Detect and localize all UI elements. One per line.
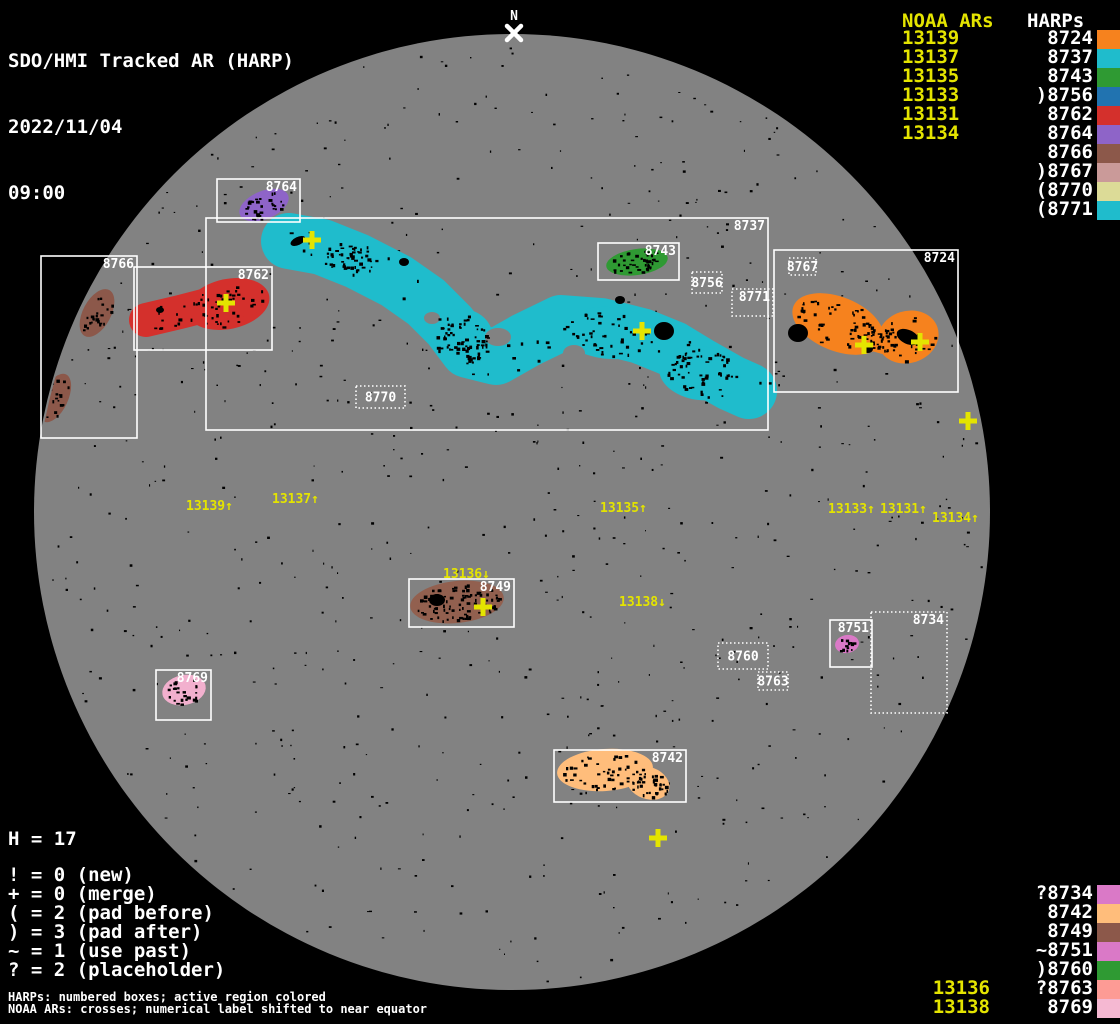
region-speckle [477,358,480,361]
speckle [680,522,683,524]
region-speckle [242,298,245,300]
region-speckle [477,344,480,346]
region-speckle [627,781,630,783]
region-speckle [61,404,64,406]
region-speckle [486,341,488,343]
speckle [868,572,871,573]
region-speckle [232,312,235,315]
region-speckle [468,347,472,349]
region-speckle [449,606,451,608]
speckle [417,88,419,89]
speckle [380,868,381,870]
speckle [333,801,336,803]
speckle [580,793,583,795]
region-speckle [55,398,58,400]
speckle [323,563,324,565]
speckle [415,875,418,877]
speckle [562,530,564,532]
speckle [732,285,734,287]
speckle [518,752,520,754]
speckle [442,752,444,753]
speckle [432,409,434,411]
speckle [842,219,844,221]
legend-color-swatch [1097,942,1120,961]
region-speckle [579,780,582,782]
speckle [910,635,913,636]
speckle [946,499,947,500]
time-label: 09:00 [8,182,294,204]
region-speckle [646,792,648,794]
region-speckle [638,781,641,783]
region-speckle [354,260,358,262]
region-speckle [668,372,670,375]
speckle [548,492,550,494]
region-speckle [238,321,241,323]
speckle [78,487,79,489]
speckle [707,226,708,227]
region-speckle [857,335,859,338]
speckle [220,654,222,655]
speckle [649,190,651,192]
speckle [598,671,600,673]
region-speckle [697,356,700,358]
region-speckle [828,307,830,310]
speckle [342,471,344,473]
speckle [579,465,580,466]
speckle [670,607,672,609]
speckle [601,187,603,189]
region-speckle [435,607,438,610]
speckle [591,268,592,270]
speckle [511,413,514,416]
region-speckle [477,340,481,342]
region-speckle [884,350,886,353]
speckle [652,469,654,471]
speckle [492,803,494,805]
harp-count: H = 17 [8,828,77,850]
speckle [672,120,674,122]
region-speckle [195,692,197,694]
region-speckle [547,346,551,348]
speckle [467,809,469,811]
speckle [292,350,293,351]
region-speckle [877,347,880,350]
region-speckle [183,695,187,697]
region-speckle [439,318,442,320]
region-speckle [804,319,808,322]
region-speckle [637,785,639,788]
region-speckle [220,295,222,298]
region-speckle [463,618,465,621]
speckle [149,484,150,486]
speckle [306,931,308,933]
region-speckle [675,363,677,365]
speckle [90,493,92,495]
speckle [338,523,340,525]
region-speckle [444,609,446,612]
region-speckle [468,316,471,319]
region-speckle [613,758,615,761]
speckle [686,257,689,258]
region-speckle [614,756,618,759]
speckle [185,765,188,767]
region-speckle [682,376,685,379]
legend-color-swatch [1097,904,1120,923]
region-speckle [619,756,623,759]
region-speckle [461,342,464,345]
region-speckle [702,378,705,381]
region-speckle [867,332,870,335]
speckle [877,674,879,676]
region-speckle [96,312,98,314]
region-speckle [689,341,691,344]
region-speckle [421,612,424,614]
region-speckle [620,270,623,272]
region-speckle [690,357,692,359]
region-speckle [667,790,669,793]
speckle [610,959,613,961]
region-speckle [574,767,578,769]
speckle [676,236,677,238]
speckle [290,745,291,746]
region-speckle [475,594,477,596]
region-speckle [599,347,603,349]
speckle [729,346,732,348]
speckle [537,425,538,426]
region-speckle [863,323,866,326]
speckle [545,535,547,537]
region-speckle [629,264,632,266]
speckle [768,138,771,140]
speckle [611,658,612,659]
region-speckle [632,774,635,776]
speckle [543,864,544,866]
speckle [482,534,485,536]
region-speckle [196,686,198,688]
region-speckle [682,356,684,359]
region-speckle [435,612,438,614]
speckle [682,161,685,163]
speckle [704,104,706,105]
speckle [65,578,66,580]
region-speckle [183,306,185,308]
region-speckle [891,329,894,332]
region-speckle [367,258,371,261]
region-speckle [507,344,510,347]
region-speckle [232,295,236,297]
speckle [738,679,740,681]
speckle [371,796,374,798]
region-speckle [670,377,674,380]
region-speckle [454,587,458,589]
region-speckle [227,290,230,292]
speckle [504,526,506,528]
region-speckle [212,317,214,319]
speckle [423,834,424,836]
harp-tracker-screen: 8737876487668762874387568771876787248770… [0,0,1120,1024]
speckle [330,196,331,197]
legend-harp-id: (8771 [943,200,1093,219]
speckle [952,345,953,347]
region-speckle [853,322,855,324]
region-speckle [418,610,420,612]
speckle [339,782,341,784]
speckle [715,655,716,657]
speckle [322,890,324,892]
harp-box-label: 8737 [734,219,765,234]
region-speckle [928,348,931,350]
speckle [562,365,565,367]
speckle [746,822,748,824]
region-speckle [655,792,659,795]
speckle [750,262,752,263]
region-speckle [216,314,219,318]
region-speckle [251,299,255,302]
region-speckle [637,269,641,271]
harp-box-label: 8771 [739,290,770,305]
speckle [508,552,510,554]
speckle [202,251,203,253]
region-speckle [588,757,592,759]
speckle [712,522,714,524]
region-speckle [193,302,195,305]
region-speckle [220,322,222,325]
region-speckle [447,619,449,621]
region-speckle [596,789,598,792]
region-speckle [58,400,60,402]
harp-box-label: 8742 [652,751,683,766]
speckle [170,757,171,759]
region-speckle [604,335,606,338]
speckle [624,114,625,116]
speckle [692,629,695,630]
region-speckle [620,782,624,785]
legend-color-swatch [1097,961,1120,980]
region-speckle [612,770,615,773]
region-speckle [886,332,888,335]
speckle [489,660,490,661]
speckle [313,550,314,552]
speckle [752,767,754,769]
region-speckle [328,248,331,251]
speckle [305,170,308,171]
speckle [162,480,165,482]
region-speckle [449,348,451,350]
region-hole [563,345,585,361]
legend-color-swatch [1097,30,1120,49]
speckle [390,558,392,561]
harp-box-8767: 8767 [787,258,818,275]
region-speckle [492,606,496,609]
speckle [430,405,433,407]
region-speckle [819,324,823,327]
region-speckle [735,376,738,378]
region-speckle [635,761,638,764]
speckle [512,53,514,55]
speckle [380,687,383,688]
speckle [579,410,582,412]
region-speckle [881,340,883,343]
speckle [821,676,823,678]
region-speckle [620,255,623,257]
speckle [58,545,60,547]
region-speckle [618,768,621,771]
speckle [383,465,385,466]
harp-box-label: 8743 [645,244,676,259]
speckle [858,819,859,820]
region-speckle [632,789,635,791]
region-speckle [443,328,445,330]
region-speckle [829,312,831,314]
harp-box-label: 8763 [757,675,788,690]
speckle [656,741,658,743]
region-speckle [350,267,354,270]
harp-box-label: 8770 [365,391,396,406]
region-speckle [359,263,363,266]
region-speckle [887,336,890,339]
speckle [371,433,373,435]
region-speckle [591,318,595,320]
speckle [91,629,94,632]
region-speckle [692,350,695,352]
speckle [329,926,332,928]
region-speckle [628,354,630,357]
region-speckle [801,307,803,310]
speckle [443,630,446,632]
speckle [617,93,619,95]
region-speckle [566,326,570,328]
region-speckle [931,344,935,347]
region-speckle [846,640,849,643]
region-speckle [602,351,604,354]
speckle [701,776,703,777]
speckle [921,522,924,524]
region-speckle [467,610,471,612]
speckle [447,449,449,450]
region-speckle [100,298,102,300]
speckle [774,132,776,133]
speckle [204,743,206,744]
harp-box-label: 8767 [787,260,818,275]
speckle [186,655,189,657]
speckle [387,124,388,126]
speckle [717,232,719,234]
region-speckle [450,597,454,600]
region-speckle [466,615,468,618]
region-speckle [717,353,719,357]
region-speckle [831,306,833,308]
speckle [122,331,123,333]
speckle [658,201,660,202]
region-speckle [487,373,489,375]
speckle [660,117,663,119]
speckle [410,427,413,429]
region-speckle [658,350,660,352]
speckle [133,635,135,636]
region-speckle [87,327,89,329]
region-speckle [570,779,574,781]
speckle [685,922,687,924]
speckle [469,664,472,666]
speckle [426,350,428,351]
region-speckle [448,328,451,330]
region-speckle [232,298,234,300]
speckle [732,567,735,568]
region-speckle [612,355,615,358]
speckle [94,445,96,447]
region-speckle [871,335,873,337]
speckle [962,445,963,447]
speckle [120,283,122,284]
speckle [672,720,674,722]
speckle [418,745,419,747]
region-speckle [360,248,362,251]
speckle [234,496,235,498]
speckle [327,400,329,402]
legend-color-swatch [1097,999,1120,1018]
speckle [426,694,428,696]
speckle [683,170,686,172]
speckle [216,385,218,386]
region-speckle [93,318,95,320]
sunspot [429,594,445,606]
region-speckle [311,254,313,256]
region-speckle [486,600,488,602]
speckle [181,381,183,383]
speckle [919,407,922,408]
harp-box-8756: 8756 [691,272,722,293]
speckle [443,479,445,481]
speckle [841,271,844,272]
speckle [865,281,868,283]
region-speckle [362,267,366,269]
speckle [766,117,768,119]
speckle [553,124,556,126]
speckle [406,234,407,236]
speckle [342,597,344,599]
speckle [639,367,641,369]
speckle [717,778,719,779]
region-speckle [722,395,724,397]
region-speckle [759,382,761,385]
region-speckle [914,317,917,319]
region-speckle [625,769,627,771]
region-speckle [537,340,539,344]
speckle [99,677,102,679]
speckle [88,349,90,351]
region-speckle [496,597,498,600]
speckle [299,341,301,342]
region-speckle [63,381,66,384]
speckle [299,327,301,329]
speckle [273,668,275,670]
speckle [253,682,256,683]
region-speckle [640,785,643,788]
speckle [820,425,822,427]
region-speckle [846,650,848,653]
region-speckle [56,380,60,383]
speckle [398,868,401,869]
speckle [460,912,463,914]
legend-color-swatch [1097,68,1120,87]
region-speckle [630,331,632,333]
region-speckle [701,355,703,357]
region-speckle [840,650,843,652]
speckle [260,384,261,386]
speckle [468,631,469,632]
region-speckle [659,787,662,790]
speckle [768,745,771,747]
